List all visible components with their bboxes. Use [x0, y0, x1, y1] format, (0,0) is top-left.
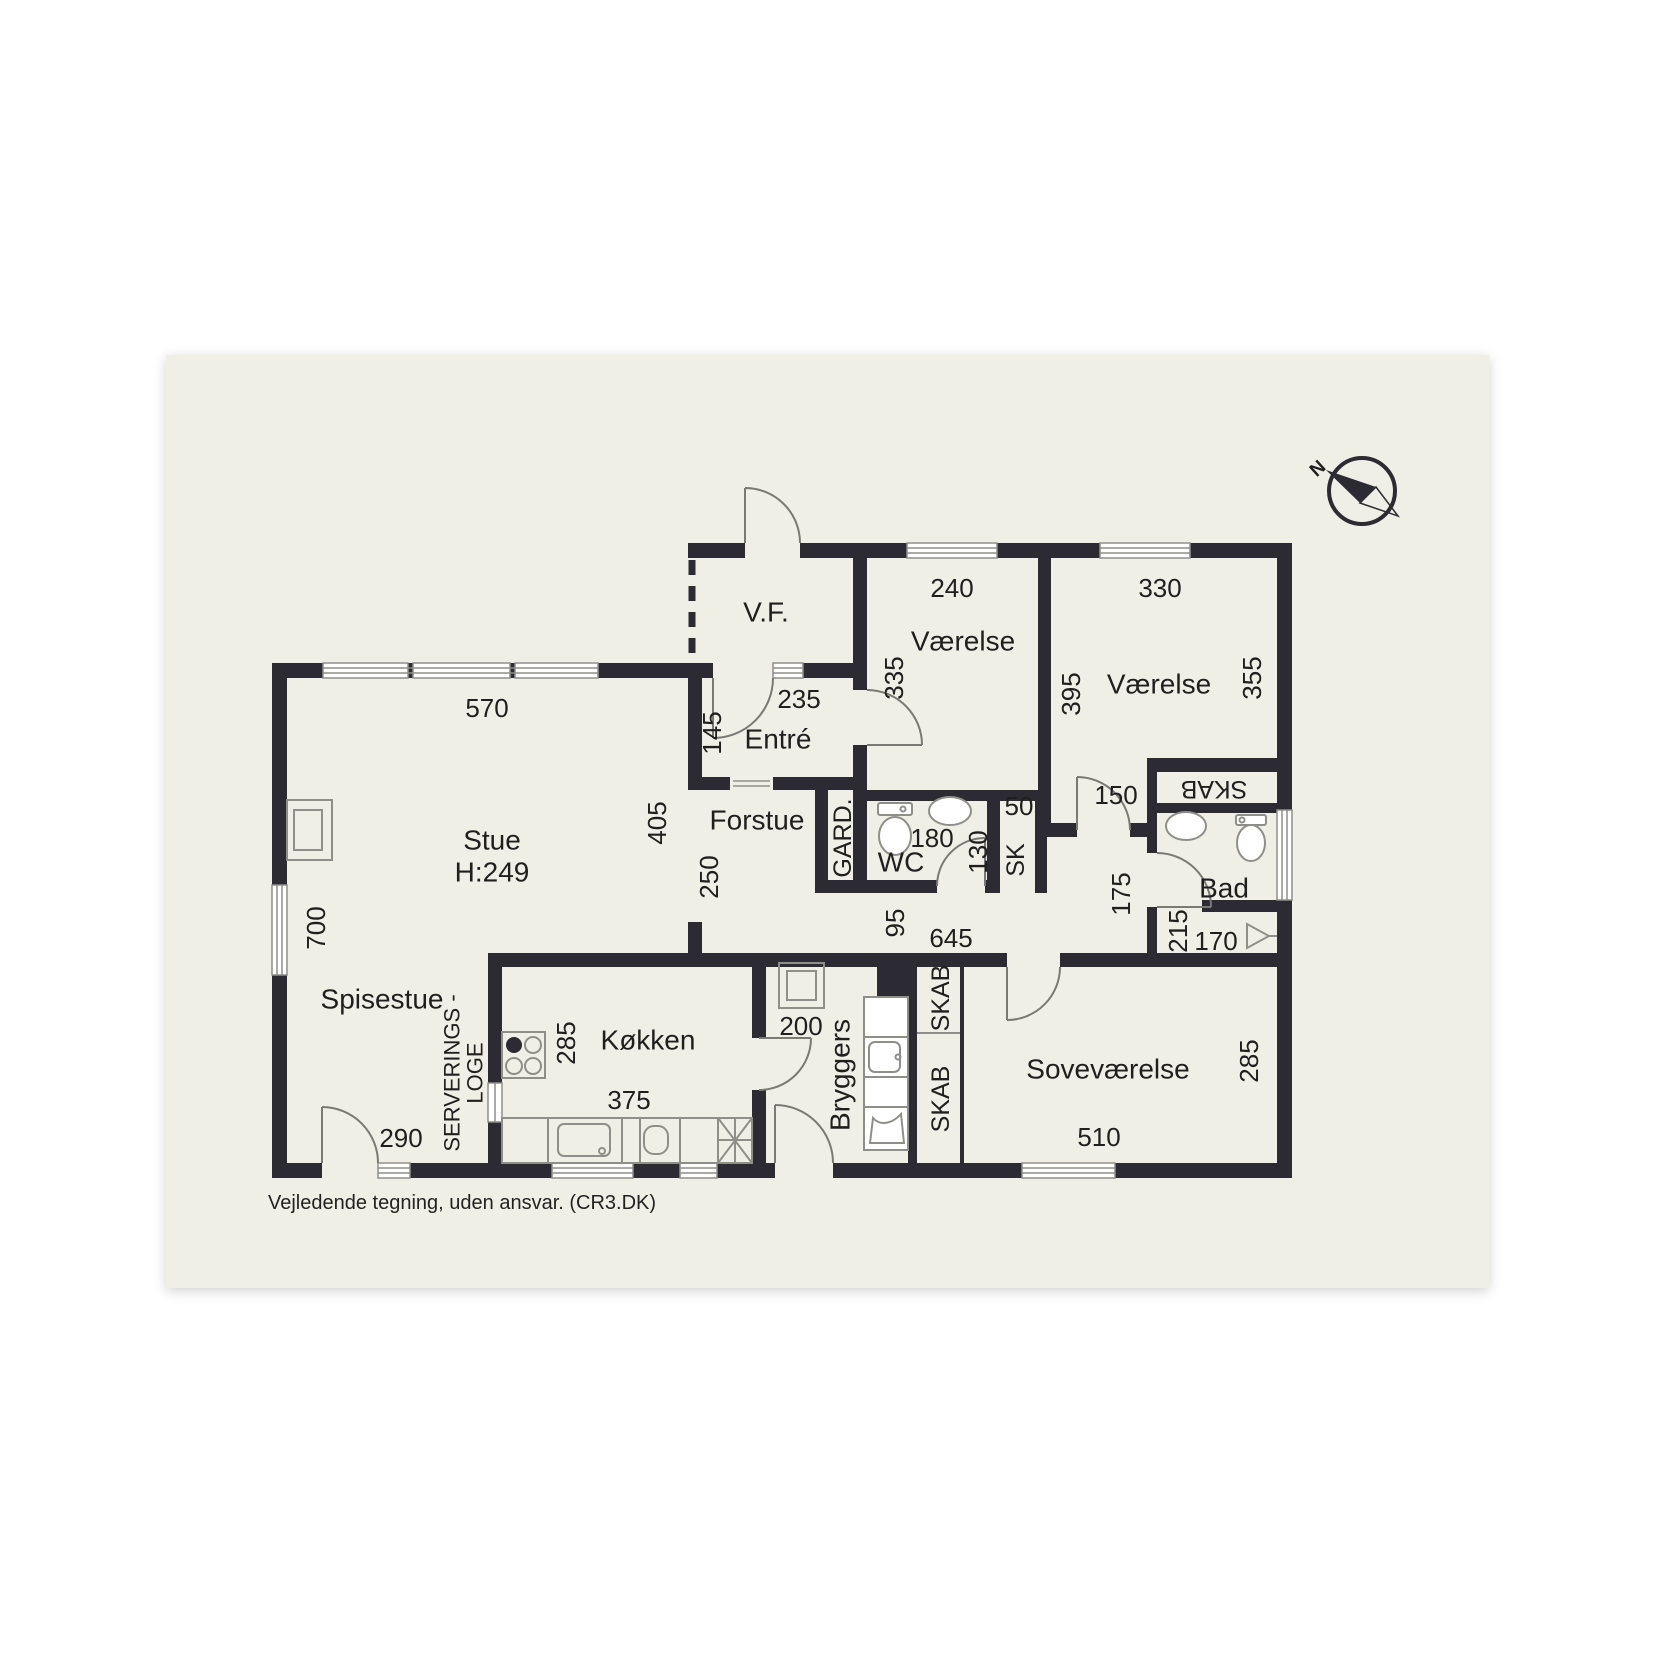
dim-510: 510: [1077, 1122, 1120, 1152]
room-label-vf: V.F.: [743, 597, 789, 628]
closet-label-skab-1: SKAB: [927, 965, 955, 1032]
room-label-vaerelse-1: Værelse: [911, 626, 1015, 657]
window-spisestue-south: [378, 1163, 410, 1178]
window-vaerelse1-north: [907, 543, 997, 558]
disclaimer: Vejledende tegning, uden ansvar. (CR3.DK…: [268, 1192, 656, 1215]
laundry-appliances: [864, 997, 908, 1150]
closet-label-skab-2: SKAB: [927, 1066, 955, 1133]
room-label-sovevaerelse: Soveværelse: [1026, 1054, 1189, 1085]
room-label-stue-height: H:249: [455, 857, 530, 888]
room-label-vaerelse-2: Værelse: [1107, 669, 1211, 700]
dim-50: 50: [1005, 791, 1034, 821]
closet-label-gard: GARD.: [829, 798, 857, 877]
dim-235: 235: [777, 684, 820, 714]
room-label-stue: Stue: [463, 825, 521, 856]
wc-sink-icon: [929, 797, 971, 825]
room-label-forstue: Forstue: [710, 805, 805, 836]
bad-toilet-icon: [1236, 815, 1266, 861]
room-label-bryggers: Bryggers: [825, 1019, 856, 1131]
dim-645: 645: [929, 923, 972, 953]
closet-label-skab-bad: SKAB: [1181, 775, 1248, 803]
label-serverings: SERVERINGS -: [440, 994, 465, 1151]
dim-250: 250: [694, 855, 724, 898]
dim-175: 175: [1106, 872, 1136, 915]
room-label-entre: Entré: [745, 724, 812, 755]
floor-plan-page: { "page": { "disclaimer": "Vejledende te…: [0, 0, 1654, 1654]
window-west: [272, 885, 287, 975]
label-loge: LOGE: [463, 1042, 488, 1103]
window-koekken-south-2: [680, 1163, 717, 1178]
window-sovevaerelse-south: [1022, 1163, 1115, 1178]
dim-130: 130: [963, 830, 993, 873]
kitchen-fan-icon: [718, 1118, 752, 1163]
dim-150: 150: [1094, 780, 1137, 810]
dim-95: 95: [880, 909, 910, 938]
window-bad-east: [1277, 810, 1292, 900]
dim-395: 395: [1056, 672, 1086, 715]
room-label-koekken: Køkken: [601, 1025, 696, 1056]
dim-170: 170: [1194, 926, 1237, 956]
dim-355: 355: [1237, 656, 1267, 699]
window-koekken-south-1: [552, 1163, 633, 1178]
dim-285-sovevaerelse: 285: [1234, 1039, 1264, 1082]
dim-200: 200: [779, 1011, 822, 1041]
window-vaerelse2-north: [1100, 543, 1190, 558]
closet-label-sk: SK: [1002, 843, 1030, 877]
dim-700: 700: [301, 906, 331, 949]
dim-290: 290: [379, 1123, 422, 1153]
dim-180: 180: [910, 823, 953, 853]
dim-215: 215: [1163, 909, 1193, 952]
window-vf-entre-transom: [773, 663, 803, 678]
dim-145: 145: [697, 711, 727, 754]
window-stue-north: [323, 663, 598, 678]
dim-330: 330: [1138, 573, 1181, 603]
dim-375: 375: [607, 1085, 650, 1115]
dim-335: 335: [879, 656, 909, 699]
room-label-spisestue: Spisestue: [321, 984, 444, 1015]
dim-285-koekken: 285: [551, 1021, 581, 1064]
bad-sink-icon: [1166, 812, 1206, 840]
room-label-bad: Bad: [1199, 873, 1249, 904]
dim-405: 405: [642, 801, 672, 844]
floor-plan: V.F.EntréForstueStueH:249SpisestueKøkken…: [0, 0, 1654, 1654]
serving-hatch: [488, 1083, 502, 1122]
dim-240: 240: [930, 573, 973, 603]
dim-570: 570: [465, 693, 508, 723]
